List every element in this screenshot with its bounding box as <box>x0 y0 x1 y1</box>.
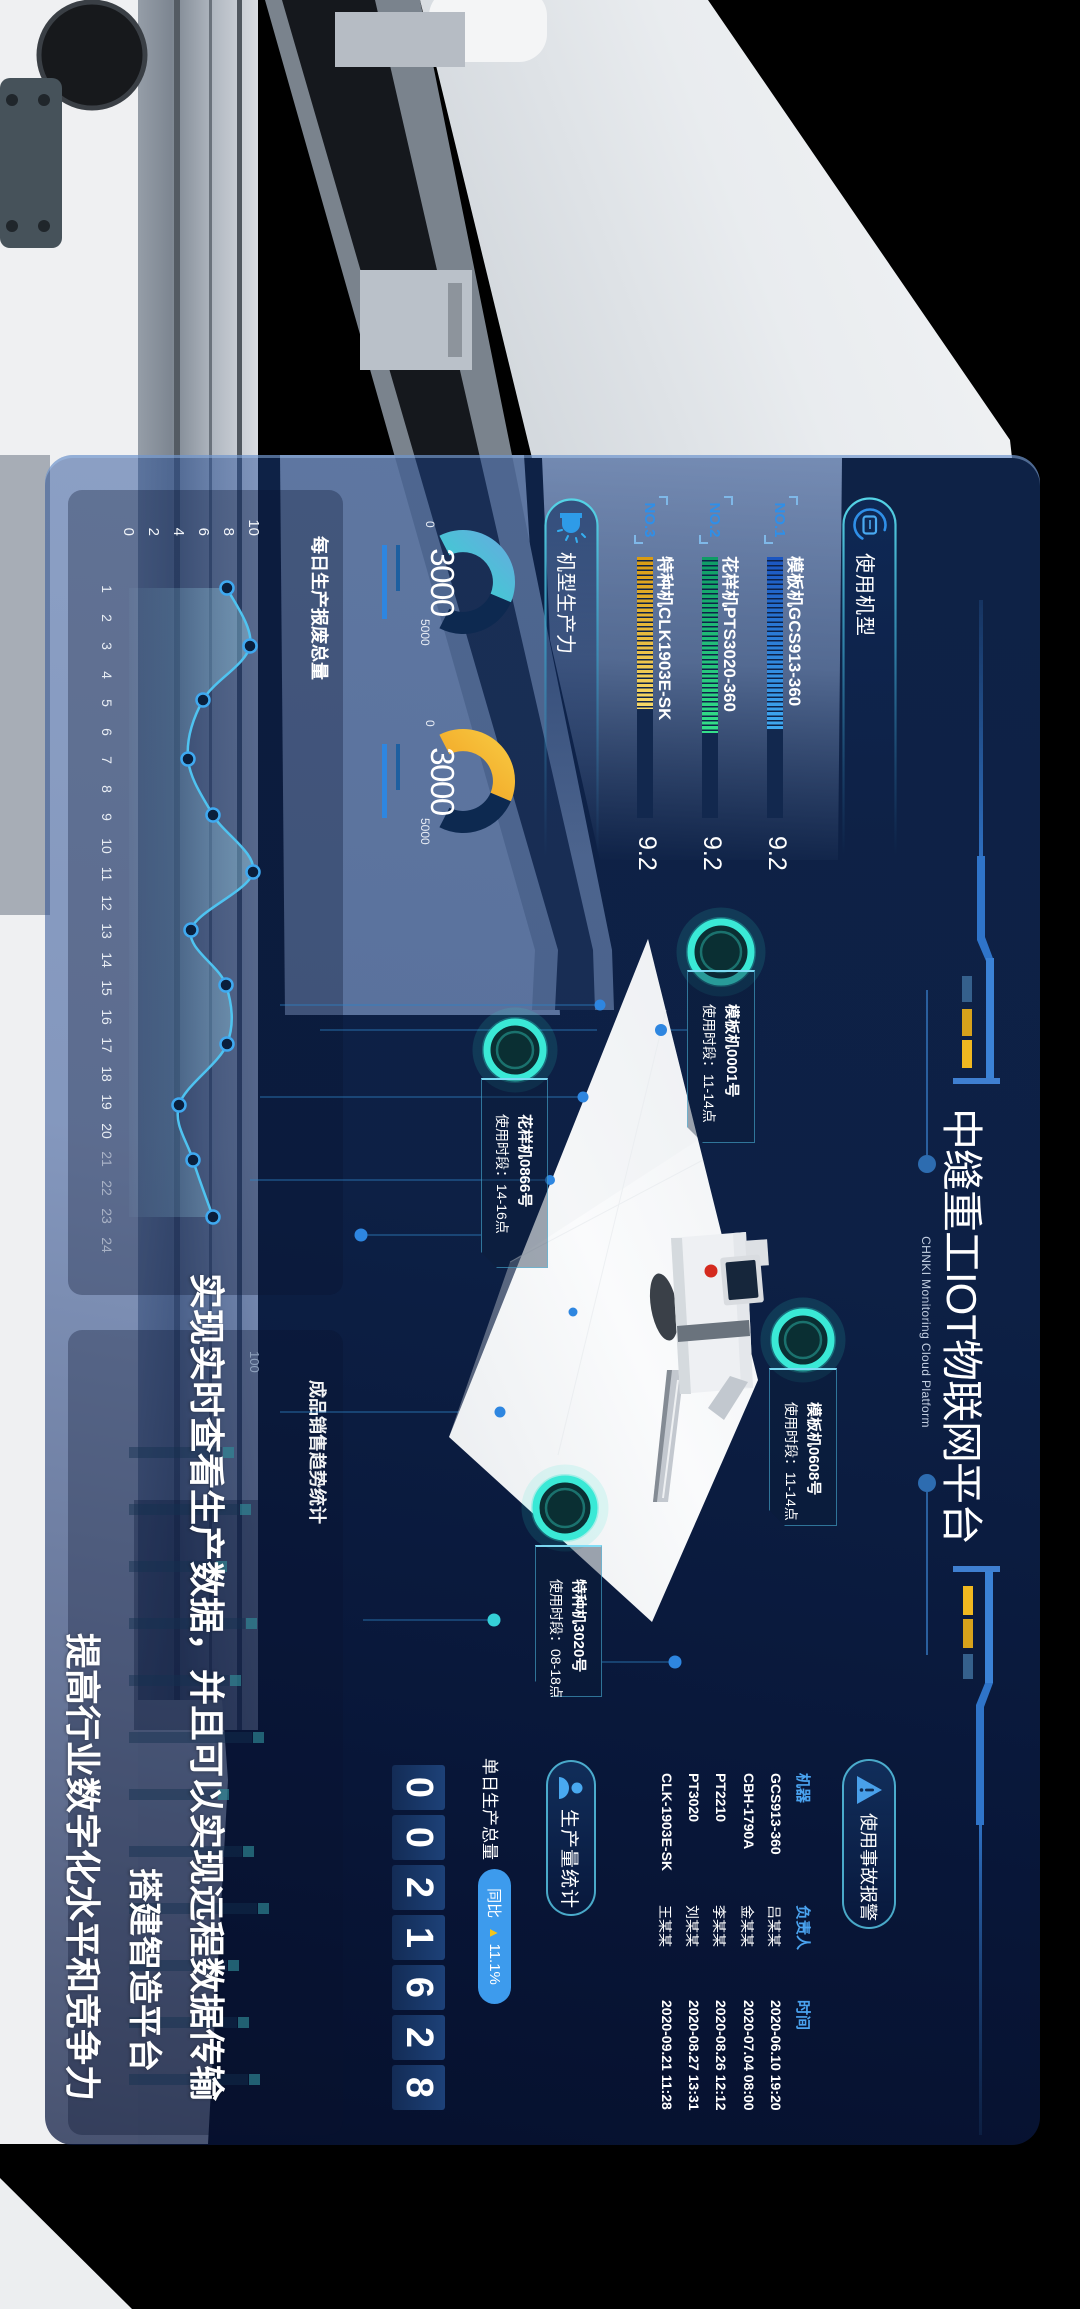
svg-text:NO.3: NO.3 <box>641 502 658 537</box>
svg-text:17: 17 <box>99 1037 115 1053</box>
svg-text:18: 18 <box>99 1066 115 1082</box>
svg-text:8: 8 <box>220 528 237 536</box>
svg-text:4: 4 <box>99 671 115 679</box>
svg-text:5000: 5000 <box>418 818 432 845</box>
svg-text:5000: 5000 <box>418 619 432 646</box>
svg-text:22: 22 <box>99 1180 115 1196</box>
svg-text:21: 21 <box>99 1151 115 1167</box>
svg-text:4: 4 <box>170 528 187 536</box>
svg-text:0: 0 <box>423 521 437 528</box>
svg-text:2: 2 <box>145 528 162 536</box>
svg-text:7: 7 <box>99 756 115 764</box>
svg-text:6: 6 <box>99 728 115 736</box>
svg-text:15: 15 <box>99 980 115 996</box>
svg-text:10: 10 <box>245 519 262 536</box>
svg-text:14: 14 <box>99 952 115 968</box>
svg-text:0: 0 <box>120 528 137 536</box>
svg-text:2: 2 <box>99 614 115 622</box>
svg-text:16: 16 <box>99 1009 115 1025</box>
svg-text:3000: 3000 <box>424 747 461 816</box>
svg-text:1: 1 <box>99 585 115 593</box>
svg-text:6: 6 <box>195 528 212 536</box>
svg-text:9: 9 <box>99 813 115 821</box>
svg-text:13: 13 <box>99 923 115 939</box>
svg-text:3: 3 <box>99 642 115 650</box>
svg-text:NO.2: NO.2 <box>706 502 723 537</box>
svg-text:11: 11 <box>99 867 115 882</box>
svg-text:10: 10 <box>99 838 115 854</box>
svg-text:5: 5 <box>99 699 115 707</box>
svg-text:NO.1: NO.1 <box>771 502 788 537</box>
svg-text:3000: 3000 <box>424 548 461 617</box>
svg-text:19: 19 <box>99 1094 115 1110</box>
svg-text:12: 12 <box>99 895 115 911</box>
svg-text:0: 0 <box>423 720 437 727</box>
svg-text:8: 8 <box>99 785 115 793</box>
svg-text:20: 20 <box>99 1123 115 1139</box>
